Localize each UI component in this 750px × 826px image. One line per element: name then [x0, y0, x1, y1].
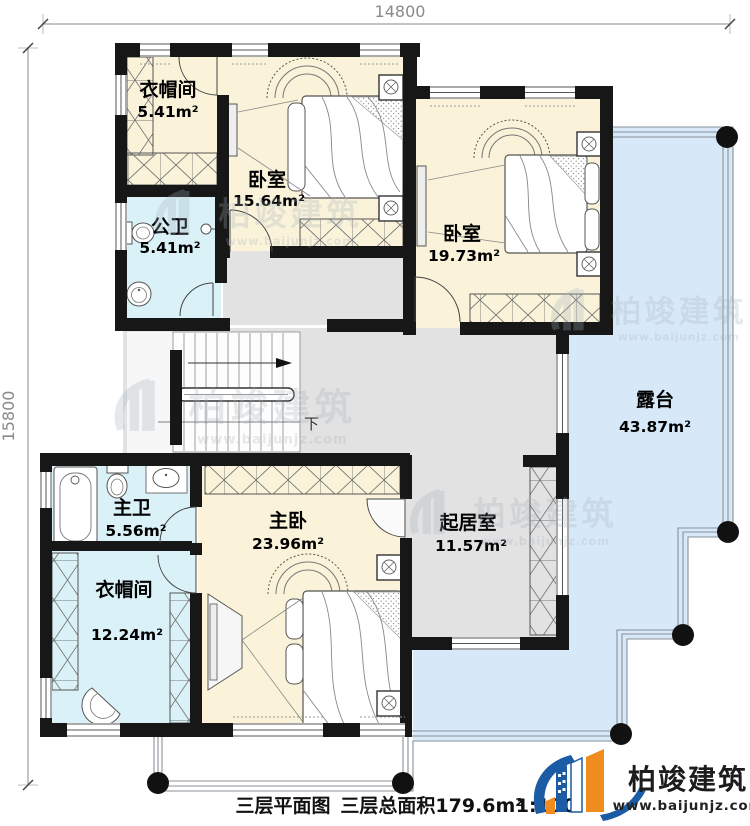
room-label-terrace: 露台	[636, 388, 674, 411]
floor-plan-canvas: 下	[0, 0, 750, 826]
nightstand	[379, 75, 403, 100]
corridor-floor	[223, 251, 407, 325]
room-area-bath2: 5.56m²	[105, 522, 166, 540]
closet	[52, 553, 78, 690]
room-area-master: 23.96m²	[252, 535, 324, 553]
sink	[127, 282, 151, 306]
pillow	[585, 209, 599, 250]
dim-width-label: 14800	[375, 2, 426, 21]
room-label-master: 主卧	[269, 510, 307, 532]
room-label-cloak2: 衣帽间	[95, 578, 152, 601]
room-label-bath2: 主卫	[113, 497, 151, 519]
nightstand	[379, 196, 403, 221]
window	[525, 86, 575, 99]
svg-text:柏竣建筑: 柏竣建筑	[218, 195, 362, 233]
column	[717, 521, 739, 543]
room-label-bed2: 卧室	[443, 222, 481, 245]
column	[610, 723, 632, 745]
svg-text:柏竣建筑: 柏竣建筑	[188, 385, 356, 429]
column	[147, 772, 169, 794]
column	[392, 772, 414, 794]
room-area-bed2: 19.73m²	[428, 247, 500, 265]
window	[40, 472, 52, 508]
room-area-cloak1: 5.41m²	[137, 103, 198, 121]
brand-logo: 柏竣建筑 www.baijunjz.com	[534, 749, 750, 821]
svg-text:柏竣建筑: 柏竣建筑	[611, 294, 747, 330]
window	[360, 723, 405, 737]
nightstand	[377, 691, 401, 716]
total-area: 三层总面积179.6m²	[340, 794, 523, 817]
window	[67, 723, 120, 737]
window	[233, 723, 323, 737]
toilet	[107, 465, 128, 498]
plan-title: 三层平面图	[235, 795, 330, 817]
svg-text:www.baijunjz.com: www.baijunjz.com	[618, 331, 740, 344]
sink	[146, 463, 187, 493]
brand-website: www.baijunjz.com	[613, 798, 750, 814]
window	[115, 75, 127, 115]
svg-text:www.baijunjz.com: www.baijunjz.com	[197, 433, 348, 448]
closet	[530, 467, 557, 635]
room-area-bath1: 5.41m²	[139, 239, 200, 257]
bathtub	[54, 467, 97, 547]
dim-height-label: 15800	[0, 391, 18, 442]
closet	[127, 153, 217, 185]
room-area-terrace: 43.87m²	[619, 418, 691, 436]
dimension-left: 15800	[0, 43, 38, 790]
nightstand	[577, 132, 601, 156]
dimension-top: 14800	[38, 2, 735, 34]
room-label-cloak1: 衣帽间	[139, 78, 196, 101]
window	[430, 86, 480, 99]
window	[115, 203, 127, 250]
window	[556, 354, 569, 433]
window	[140, 43, 170, 57]
svg-text:www.baijunjz.com: www.baijunjz.com	[481, 535, 610, 548]
nightstand	[577, 252, 601, 276]
window	[452, 637, 520, 650]
window	[232, 43, 268, 57]
room-label-bed1: 卧室	[248, 168, 286, 191]
window	[40, 678, 52, 718]
pillow	[286, 599, 303, 639]
svg-text:柏竣建筑: 柏竣建筑	[473, 495, 617, 533]
pillow	[585, 163, 599, 204]
room-area-cloak2: 12.24m²	[91, 626, 163, 644]
column	[672, 624, 694, 646]
pillow	[288, 103, 305, 191]
caption: 三层平面图 三层总面积179.6m² 1:100	[235, 794, 576, 817]
svg-text:www.baijunjz.com: www.baijunjz.com	[226, 235, 355, 248]
window	[360, 43, 400, 57]
pillow	[286, 644, 303, 684]
nightstand	[377, 555, 401, 580]
closet	[205, 465, 400, 494]
column	[716, 126, 738, 148]
brand-name: 柏竣建筑	[628, 763, 748, 796]
